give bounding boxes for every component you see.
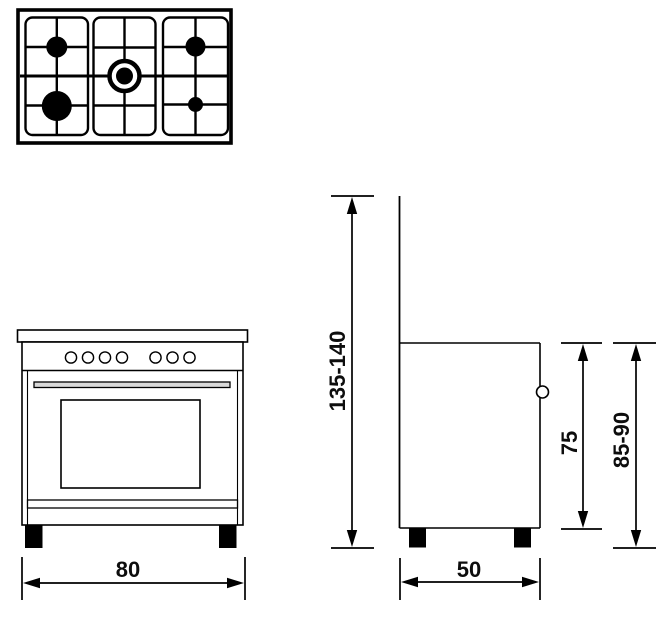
side-foot-left [409,528,426,548]
width-label: 80 [116,557,140,582]
side-foot-right [514,528,531,548]
wok-burner-core [116,68,133,85]
front-worktop-strip [18,330,248,342]
side-handle-knob [537,386,549,398]
oven-knob-2 [82,352,93,363]
cooker-dimension-diagram: 135-140 75 85-90 80 50 [0,0,666,619]
oven-knob-1 [65,352,76,363]
hob-top-view [18,10,231,143]
oven-door-window [61,400,200,488]
front-right-burner [188,97,203,112]
oven-knob-5 [150,352,161,363]
arrow-down-icon [578,511,588,528]
arrow-down-icon [347,530,357,547]
front-left-burner [42,91,72,121]
overall-height-label: 135-140 [325,331,350,412]
front-foot-right [219,525,237,548]
arrow-up-icon [578,344,588,361]
door-handle-bar [34,382,230,388]
oven-knob-7 [184,352,195,363]
arrow-down-icon [631,530,641,547]
cooker-side-view [400,196,549,548]
arrow-left-icon [401,577,418,587]
arrow-left-icon [23,578,40,588]
worktop-height-label: 85-90 [609,412,634,468]
arrow-right-icon [227,578,244,588]
body-height-label: 75 [557,431,582,455]
dimension-worktop-height: 85-90 [609,343,656,548]
arrow-up-icon [347,197,357,214]
cooker-front-view [18,330,248,548]
center-wok-burner [110,61,140,91]
dimension-depth: 50 [400,557,540,600]
oven-knob-3 [99,352,110,363]
dimension-width: 80 [22,557,245,600]
rear-right-burner [186,37,206,57]
front-foot-left [25,525,43,548]
dimension-overall-height: 135-140 [325,196,374,548]
dimension-body-height: 75 [557,343,602,529]
storage-drawer-strip [28,500,238,508]
depth-label: 50 [457,557,481,582]
arrow-up-icon [631,344,641,361]
oven-knob-4 [116,352,127,363]
arrow-right-icon [522,577,539,587]
oven-knob-6 [167,352,178,363]
rear-left-burner [46,37,67,58]
